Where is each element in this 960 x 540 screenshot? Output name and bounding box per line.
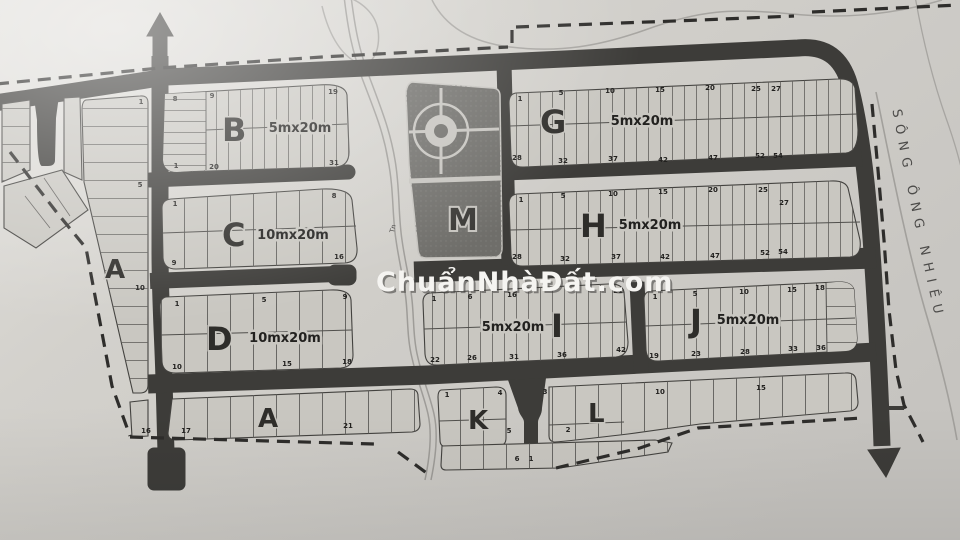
land-map: 1 5 10 A 8 9 19 1 20 31 B 5mx20m 1 8 9 1… <box>0 0 960 540</box>
land-plot-map-photo: 1 5 10 A 8 9 19 1 20 31 B 5mx20m 1 8 9 1… <box>0 0 960 540</box>
photo-vignette-overlay <box>0 0 960 540</box>
